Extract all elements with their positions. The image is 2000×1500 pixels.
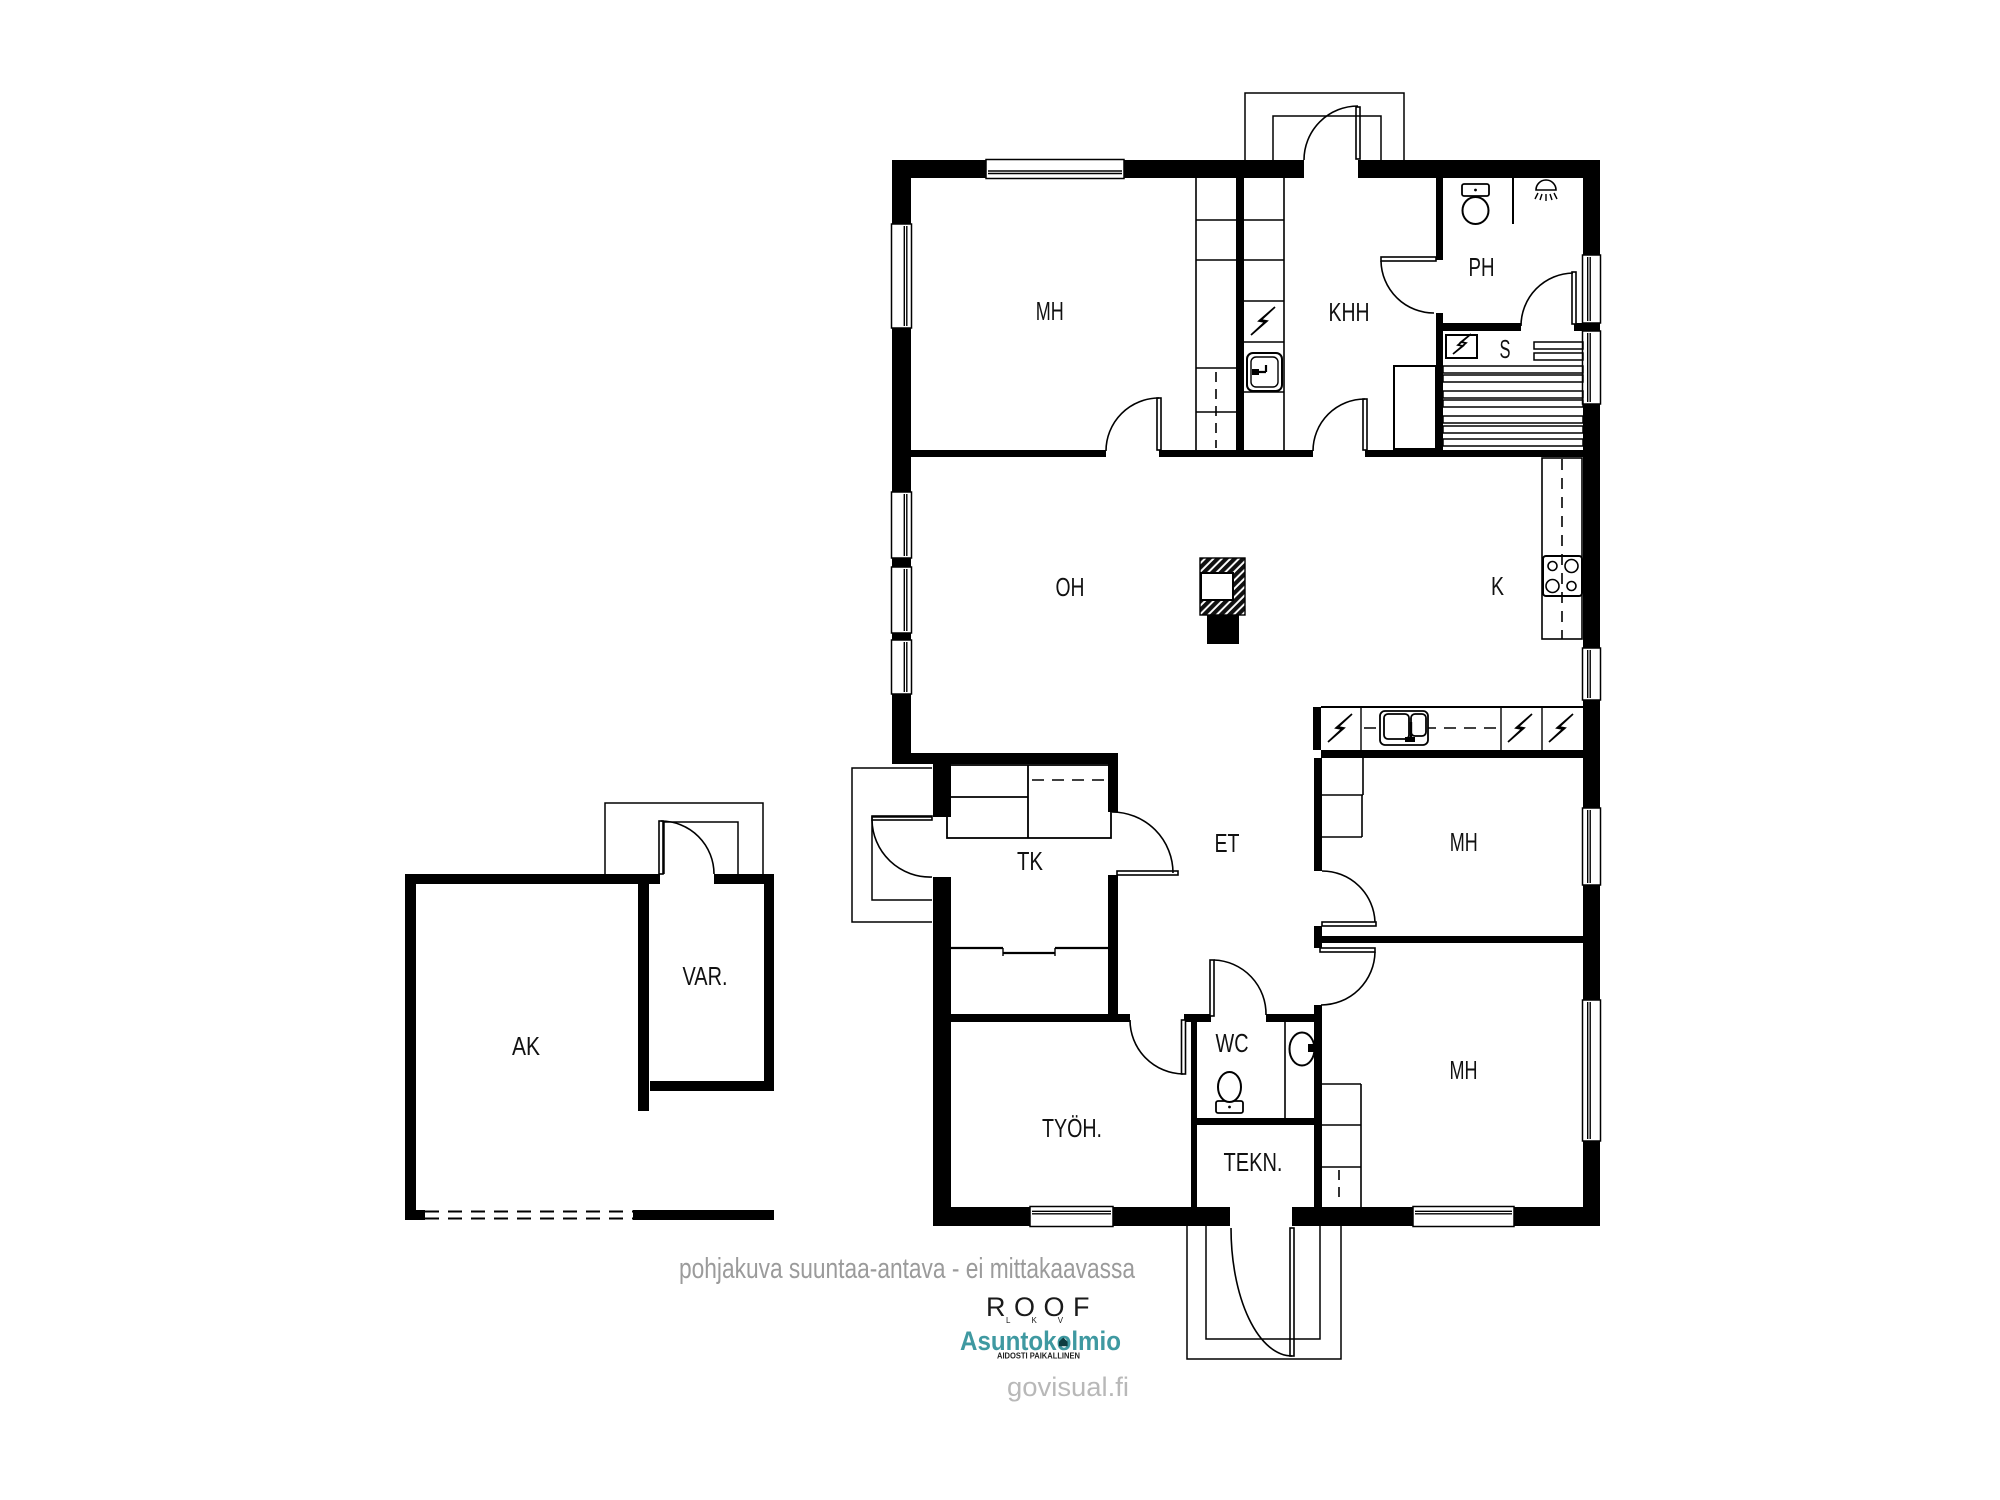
svg-text:S: S bbox=[1500, 334, 1511, 364]
svg-text:LKV: LKV bbox=[1006, 1316, 1084, 1325]
svg-text:MH: MH bbox=[1450, 827, 1478, 857]
svg-text:ET: ET bbox=[1215, 828, 1240, 858]
svg-text:WC: WC bbox=[1216, 1028, 1249, 1058]
svg-text:KHH: KHH bbox=[1329, 297, 1370, 327]
svg-text:K: K bbox=[1491, 571, 1504, 601]
svg-text:AK: AK bbox=[512, 1031, 541, 1061]
svg-text:TYÖH.: TYÖH. bbox=[1042, 1113, 1102, 1143]
svg-text:PH: PH bbox=[1469, 252, 1495, 282]
svg-text:TK: TK bbox=[1017, 846, 1044, 876]
svg-text:AIDOSTI PAIKALLINEN: AIDOSTI PAIKALLINEN bbox=[997, 1352, 1080, 1361]
svg-text:OH: OH bbox=[1056, 572, 1085, 602]
svg-text:pohjakuva suuntaa-antava - ei: pohjakuva suuntaa-antava - ei mittakaava… bbox=[679, 1253, 1136, 1285]
svg-text:MH: MH bbox=[1036, 296, 1064, 326]
svg-text:VAR.: VAR. bbox=[683, 961, 728, 991]
svg-text:TEKN.: TEKN. bbox=[1224, 1147, 1283, 1177]
svg-text:MH: MH bbox=[1450, 1055, 1478, 1085]
svg-text:govisual.fi: govisual.fi bbox=[1007, 1372, 1129, 1402]
